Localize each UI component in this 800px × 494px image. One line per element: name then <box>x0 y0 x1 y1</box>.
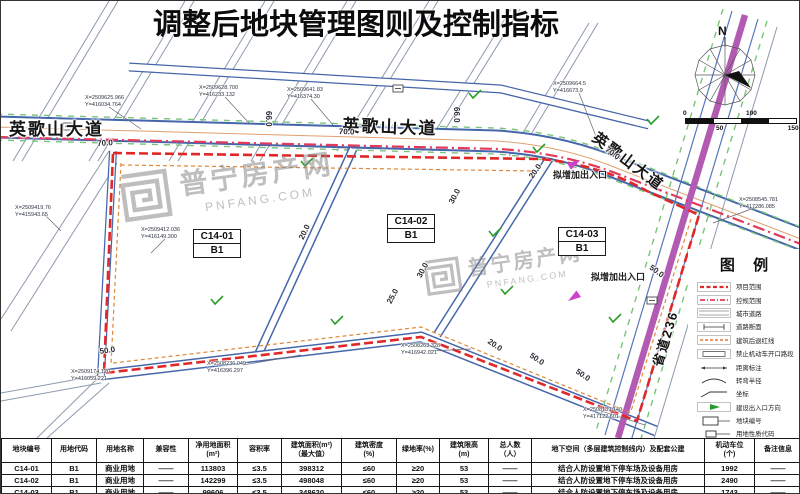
table-cell: ≤3.5 <box>238 463 282 475</box>
table-cell: 99606 <box>189 487 238 494</box>
plot-code: C14-01 <box>194 230 240 244</box>
dimension-label: 66.0 <box>264 111 273 127</box>
city-road-icon <box>697 308 731 318</box>
table-cell: —— <box>755 475 800 487</box>
plot-use-code: B1 <box>194 244 240 257</box>
legend-item: 地块编号 <box>697 414 798 427</box>
plot-label: C14-03B1 <box>558 227 606 256</box>
table-cell: 结合人防设置地下停车场及设备用房 <box>532 487 705 494</box>
scale-tick: 150M <box>788 125 800 132</box>
plot-label: C14-02B1 <box>387 214 435 243</box>
coordinate-label: X=2508236.049Y=416396.297 <box>207 361 246 375</box>
table-cell: ≤3.5 <box>238 475 282 487</box>
legend-item-label: 城市道路 <box>736 309 762 318</box>
table-row: C14-02B1商业用地——142299≤3.5498048≤60≥2053——… <box>2 475 800 487</box>
legend-panel: 图 例 项目范围控规范围城市道路道路断面建筑后退红线禁止机动车开口路段距离标注转… <box>688 249 800 438</box>
table-header-cell: 用地代码 <box>52 439 97 463</box>
table-header-cell: 地块编号 <box>2 439 52 463</box>
legend-title: 图 例 <box>697 254 798 275</box>
road-section-icon <box>697 322 731 332</box>
turn-radius-icon <box>697 375 731 385</box>
table-cell: 1743 <box>705 487 755 494</box>
table-cell: —— <box>489 463 532 475</box>
coordinate-label: X=2509174.120Y=416059.221 <box>71 369 110 383</box>
distance-mark-icon <box>697 362 731 372</box>
planning-map-page: 普宁房产网 PNFANG.COM 普宁房产网 PNFANG.COM 调整后地块管… <box>0 0 800 494</box>
legend-item: 道路断面 <box>697 320 798 333</box>
dimension-label: 66.0 <box>452 107 461 123</box>
plot-code: C14-03 <box>559 228 605 242</box>
legend-item-label: 坐标 <box>736 389 749 398</box>
coordinate-label: X=2508545.781Y=417286.085 <box>739 197 778 211</box>
plot-use-code: B1 <box>388 229 434 242</box>
legend-item: 坐标 <box>697 387 798 400</box>
table-header-cell: 建筑面积(m²) （最大值） <box>282 439 342 463</box>
legend-item-label: 距离标注 <box>736 363 762 372</box>
north-label: N <box>718 24 727 38</box>
scale-segment <box>769 119 797 123</box>
page-title: 调整后地块管理图则及控制指标 <box>153 1 559 43</box>
scale-segment <box>686 119 714 123</box>
plot-use-code: B1 <box>559 242 605 255</box>
table-cell: C14-02 <box>2 475 52 487</box>
control-indicators-table: 地块编号用地代码用地名称兼容性净用地面积 (m²)容积率建筑面积(m²) （最大… <box>1 438 800 494</box>
project-boundary-icon <box>697 282 731 292</box>
table-header-cell: 净用地面积 (m²) <box>189 439 238 463</box>
scale-tick: 0 <box>683 110 687 117</box>
table-cell: —— <box>144 487 189 494</box>
coordinate-label: X=2508139.140Y=417122.601 <box>583 407 622 421</box>
entrance-direction-icon <box>697 402 731 412</box>
legend-item: 城市道路 <box>697 307 798 320</box>
table-cell: —— <box>489 487 532 494</box>
legend-item: 建筑后退红线 <box>697 334 798 347</box>
table-cell: 142299 <box>189 475 238 487</box>
no-vehicle-opening-icon <box>697 349 731 359</box>
table-cell: —— <box>755 487 800 494</box>
legend-item-label: 禁止机动车开口路段 <box>736 349 794 358</box>
table-cell: 53 <box>440 475 489 487</box>
scale-segment <box>714 119 742 123</box>
table-header-cell: 地下空间（多层建筑控制线内）及配套公建 <box>532 439 705 463</box>
legend-item-label: 地块编号 <box>736 416 762 425</box>
scale-tick: 100 <box>746 110 757 117</box>
table-row: C14-03B1商业用地——99606≤3.5348620≤60≥2053——结… <box>2 487 800 494</box>
table-cell: B1 <box>52 475 97 487</box>
entry-note-label: 拟增加出入口 <box>553 168 607 181</box>
compass-rose: N <box>687 27 769 113</box>
legend-item-label: 建筑后退红线 <box>736 336 774 345</box>
table-cell: 2490 <box>705 475 755 487</box>
table-header-cell: 绿地率(%) <box>397 439 440 463</box>
table-cell: C14-01 <box>2 463 52 475</box>
table-cell: ≤60 <box>342 463 397 475</box>
table-cell: ≤60 <box>342 475 397 487</box>
table-cell: 398312 <box>282 463 342 475</box>
legend-item-label: 建设出入口方向 <box>736 403 781 412</box>
coordinate-label: X=2509419.76Y=415943.65 <box>15 205 51 219</box>
table-row: C14-01B1商业用地——113803≤3.5398312≤60≥2053——… <box>2 463 800 475</box>
table-cell: 348620 <box>282 487 342 494</box>
coordinate-label: X=2509664.5Y=416673.9 <box>553 81 586 95</box>
table-cell: 53 <box>440 463 489 475</box>
table-cell: 53 <box>440 487 489 494</box>
table-cell: 结合人防设置地下停车场及设备用房 <box>532 463 705 475</box>
table-header-cell: 容积率 <box>238 439 282 463</box>
scale-bar: 050100150M <box>685 118 797 124</box>
plot-label: C14-01B1 <box>193 229 241 258</box>
legend-item-label: 控规范围 <box>736 296 762 305</box>
coordinate-label: X=2509641.83Y=416374.30 <box>287 87 323 101</box>
dimension-label: 70.0 <box>97 138 113 148</box>
legend-item-label: 转弯半径 <box>736 376 762 385</box>
table-cell: ≥20 <box>397 475 440 487</box>
table-cell: ≥20 <box>397 487 440 494</box>
table-cell: 1992 <box>705 463 755 475</box>
table-cell: B1 <box>52 463 97 475</box>
legend-item-label: 项目范围 <box>736 282 762 291</box>
table-cell: 113803 <box>189 463 238 475</box>
coordinate-label: X=2509628.700Y=416233.132 <box>199 85 238 99</box>
table-cell: —— <box>144 463 189 475</box>
table-header-cell: 备注信息 <box>755 439 800 463</box>
table-header-cell: 总人数 （人） <box>489 439 532 463</box>
coordinate-label: X=2509412.036Y=416149.300 <box>141 227 180 241</box>
road-name-label: 英歌山大道 <box>9 115 104 140</box>
table-cell: —— <box>489 475 532 487</box>
legend-item-label: 道路断面 <box>736 322 762 331</box>
compass-rose-icon <box>687 27 769 113</box>
legend-item: 距离标注 <box>697 360 798 373</box>
table-header-cell: 建筑限高 (m) <box>440 439 489 463</box>
table-cell: —— <box>144 475 189 487</box>
table-cell: ≤3.5 <box>238 487 282 494</box>
table-header-cell: 兼容性 <box>144 439 189 463</box>
table-cell: 498048 <box>282 475 342 487</box>
entry-note-label: 拟增加出入口 <box>591 270 645 283</box>
table-cell: C14-03 <box>2 487 52 494</box>
table-cell: 结合人防设置地下停车场及设备用房 <box>532 475 705 487</box>
table-cell: 商业用地 <box>97 475 144 487</box>
control-boundary-icon <box>697 295 731 305</box>
table-cell: B1 <box>52 487 97 494</box>
table-cell: —— <box>755 463 800 475</box>
coordinate-label: X=2509625.966Y=416034.764 <box>85 95 124 109</box>
coordinate-label: X=2508263.328Y=416942.021 <box>401 343 440 357</box>
legend-item: 禁止机动车开口路段 <box>697 347 798 360</box>
dimension-label: 70.0 <box>339 127 355 137</box>
legend-item: 建设出入口方向 <box>697 401 798 414</box>
plot-code-icon <box>697 416 731 426</box>
setback-line-icon <box>697 335 731 345</box>
road-name-label: 英歌山大道 <box>342 111 438 139</box>
table-header-cell: 建筑密度 (%) <box>342 439 397 463</box>
scale-segment <box>741 119 769 123</box>
legend-item: 控规范围 <box>697 293 798 306</box>
table-header-cell: 机动车位 (个) <box>705 439 755 463</box>
table-cell: ≥20 <box>397 463 440 475</box>
pnfang-logo-icon <box>116 166 175 225</box>
table-cell: 商业用地 <box>97 463 144 475</box>
coordinate-mark-icon <box>697 389 731 399</box>
pnfang-logo-icon <box>421 254 464 297</box>
table-header-cell: 用地名称 <box>97 439 144 463</box>
plot-code: C14-02 <box>388 215 434 229</box>
table-cell: ≤60 <box>342 487 397 494</box>
table-cell: 商业用地 <box>97 487 144 494</box>
legend-item: 项目范围 <box>697 280 798 293</box>
scale-tick: 50 <box>716 125 723 132</box>
legend-item: 转弯半径 <box>697 374 798 387</box>
